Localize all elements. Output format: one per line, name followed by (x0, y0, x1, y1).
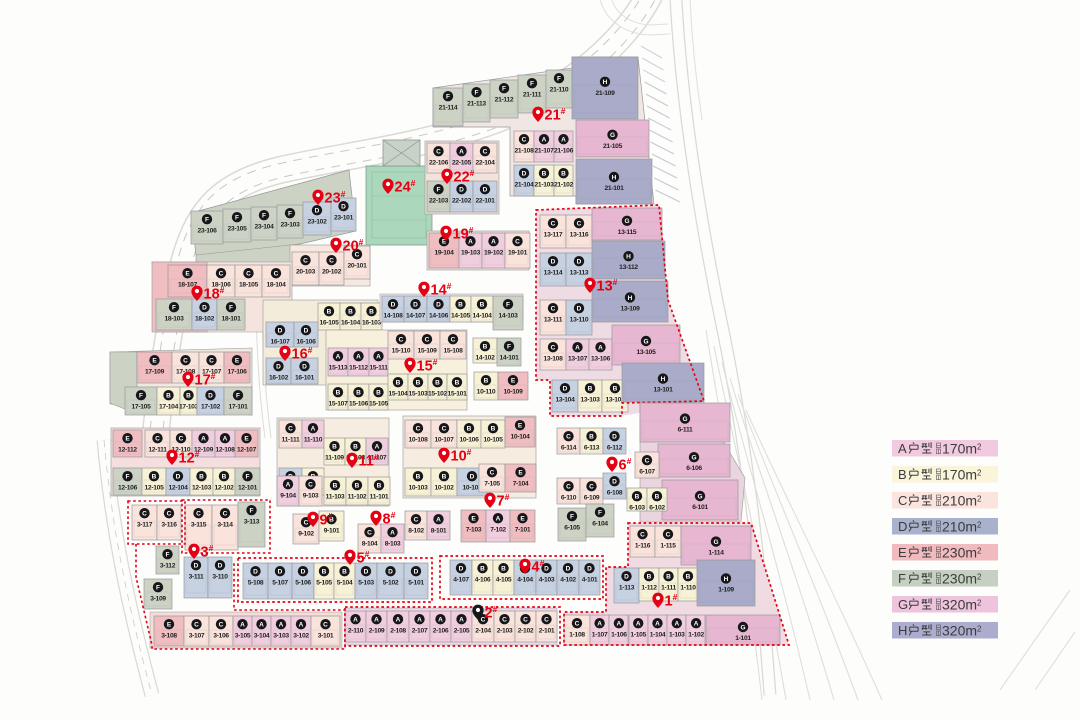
svg-text:23-104: 23-104 (254, 224, 274, 231)
svg-text:3-113: 3-113 (244, 519, 260, 526)
svg-text:D: D (459, 187, 464, 194)
svg-text:C: C (577, 221, 582, 228)
svg-text:B: B (655, 494, 660, 501)
svg-text:5-102: 5-102 (383, 580, 399, 587)
svg-text:6-110: 6-110 (561, 495, 577, 502)
svg-text:B: B (635, 494, 640, 501)
svg-text:B: B (542, 171, 547, 178)
svg-text:C: C (515, 239, 520, 246)
svg-text:B: B (322, 569, 327, 576)
svg-text:7-105: 7-105 (484, 481, 500, 488)
svg-text:C: C (442, 426, 447, 433)
svg-text:13-101: 13-101 (653, 387, 673, 394)
svg-text:E: E (152, 358, 157, 365)
svg-text:A: A (311, 426, 316, 433)
svg-text:C: C (490, 470, 495, 477)
svg-text:13-116: 13-116 (570, 232, 589, 239)
svg-text:C: C (551, 221, 556, 228)
svg-text:F: F (246, 474, 250, 481)
svg-text:21-104: 21-104 (514, 182, 534, 189)
svg-text:D: D (483, 187, 488, 194)
svg-text:12-103: 12-103 (192, 485, 212, 492)
svg-text:C: C (399, 337, 404, 344)
svg-text:A: A (561, 137, 566, 144)
svg-text:14-104: 14-104 (472, 313, 492, 320)
svg-text:5-106: 5-106 (295, 580, 311, 587)
svg-text:10-102: 10-102 (434, 485, 454, 492)
svg-text:12-111: 12-111 (148, 447, 167, 454)
svg-text:17-105: 17-105 (131, 404, 151, 411)
svg-text:3-108: 3-108 (161, 633, 177, 640)
svg-text:G: G (691, 455, 696, 462)
svg-text:18-105: 18-105 (239, 282, 259, 289)
svg-text:4-102: 4-102 (560, 577, 576, 584)
svg-text:D: D (176, 474, 181, 481)
svg-text:1-115: 1-115 (660, 543, 676, 550)
svg-text:B: B (376, 390, 381, 397)
svg-text:3-104: 3-104 (254, 633, 270, 640)
svg-text:C: C (246, 271, 251, 278)
svg-text:B: B (353, 444, 358, 451)
svg-text:21-101: 21-101 (604, 185, 624, 192)
svg-text:12-108: 12-108 (215, 447, 235, 454)
svg-text:G: G (713, 539, 718, 546)
svg-text:C: C (209, 358, 214, 365)
svg-text:A: A (286, 482, 291, 489)
svg-text:10-108: 10-108 (408, 437, 428, 444)
svg-text:C: C (566, 434, 571, 441)
svg-text:C: C (323, 622, 328, 629)
svg-text:C: C (483, 149, 488, 156)
svg-text:11-110: 11-110 (304, 437, 323, 444)
svg-text:C: C (666, 532, 671, 539)
svg-text:D: D (276, 364, 281, 371)
svg-text:C: C (219, 271, 224, 278)
svg-text:A: A (898, 441, 907, 456)
svg-text:14-102: 14-102 (475, 355, 495, 362)
svg-text:14-105: 14-105 (451, 313, 471, 320)
svg-text:F: F (570, 514, 574, 521)
svg-text:22-103: 22-103 (429, 198, 449, 205)
svg-text:C: C (575, 621, 580, 628)
svg-text:B: B (442, 474, 447, 481)
svg-text:A: A (436, 517, 441, 524)
svg-text:D: D (208, 393, 213, 400)
svg-text:C: C (142, 511, 147, 518)
svg-text:230m2: 230m2 (942, 545, 982, 561)
svg-text:D: D (551, 259, 556, 266)
svg-text:6-104: 6-104 (592, 521, 608, 528)
svg-text:G: G (610, 132, 615, 139)
svg-text:2-102: 2-102 (518, 628, 534, 635)
svg-text:1-112: 1-112 (641, 585, 657, 592)
svg-text:E: E (518, 423, 523, 430)
svg-text:A: A (636, 621, 641, 628)
svg-text:170m2: 170m2 (942, 467, 982, 483)
svg-text:8-103: 8-103 (385, 541, 401, 548)
svg-text:B: B (501, 566, 506, 573)
svg-text:17-104: 17-104 (159, 404, 179, 411)
svg-text:6-106: 6-106 (686, 465, 702, 472)
svg-text:D: D (522, 171, 527, 178)
svg-text:A: A (674, 621, 679, 628)
svg-text:11-103: 11-103 (326, 494, 345, 501)
svg-text:12-102: 12-102 (214, 485, 234, 492)
svg-text:D: D (218, 563, 223, 570)
svg-text:6-109: 6-109 (584, 495, 600, 502)
svg-text:15-101: 15-101 (447, 391, 467, 398)
svg-text:21-113: 21-113 (467, 101, 486, 108)
svg-text:3-110: 3-110 (212, 574, 228, 581)
svg-text:G: G (898, 597, 908, 612)
svg-text:F: F (507, 344, 511, 351)
svg-text:5-105: 5-105 (316, 580, 332, 587)
svg-text:3-107: 3-107 (189, 633, 205, 640)
svg-text:1-107: 1-107 (592, 632, 608, 639)
svg-text:B: B (484, 378, 489, 385)
svg-text:F: F (530, 81, 534, 88)
svg-text:15-102: 15-102 (428, 391, 448, 398)
svg-text:B: B (686, 574, 691, 581)
svg-text:13-104: 13-104 (555, 397, 575, 404)
svg-text:2-105: 2-105 (454, 628, 470, 635)
svg-text:10-105: 10-105 (483, 437, 503, 444)
svg-text:2-104: 2-104 (475, 628, 491, 635)
svg-text:B: B (613, 386, 618, 393)
svg-text:13-115: 13-115 (618, 229, 637, 236)
svg-text:A: A (390, 530, 395, 537)
svg-text:3-112: 3-112 (160, 563, 176, 570)
svg-text:B: B (480, 566, 485, 573)
svg-text:1-110: 1-110 (680, 585, 696, 592)
svg-text:B: B (369, 309, 374, 316)
svg-text:C: C (551, 306, 556, 313)
svg-text:6-102: 6-102 (649, 505, 665, 512)
svg-text:20-103: 20-103 (296, 269, 316, 276)
svg-text:3-116: 3-116 (161, 522, 177, 529)
svg-text:F: F (166, 552, 170, 559)
svg-text:16-105: 16-105 (319, 320, 339, 327)
svg-text:3-117: 3-117 (137, 522, 153, 529)
svg-text:6-107: 6-107 (639, 469, 655, 476)
svg-text:E: E (185, 271, 190, 278)
svg-text:10-106: 10-106 (459, 437, 479, 444)
svg-text:D: D (436, 302, 441, 309)
svg-text:D: D (612, 479, 617, 486)
svg-text:3-106: 3-106 (213, 633, 229, 640)
svg-text:A: A (617, 621, 622, 628)
svg-text:H: H (724, 576, 729, 583)
svg-text:H: H (603, 79, 608, 86)
svg-text:B: B (356, 390, 361, 397)
svg-text:1-109: 1-109 (718, 586, 734, 593)
svg-text:16-104: 16-104 (341, 320, 361, 327)
svg-text:4-103: 4-103 (539, 577, 555, 584)
svg-text:14-107: 14-107 (406, 313, 426, 320)
svg-text:D: D (577, 259, 582, 266)
svg-text:A: A (496, 516, 501, 523)
svg-text:9-104: 9-104 (280, 493, 296, 500)
svg-text:B: B (332, 444, 337, 451)
svg-text:D: D (459, 566, 464, 573)
svg-text:14-103: 14-103 (498, 313, 518, 320)
svg-text:10-104: 10-104 (510, 434, 530, 441)
svg-text:C: C (436, 149, 441, 156)
svg-text:4-104: 4-104 (517, 577, 533, 584)
svg-text:F: F (898, 571, 906, 586)
svg-text:B: B (491, 426, 496, 433)
svg-text:G: G (643, 338, 648, 345)
svg-text:A: A (375, 444, 380, 451)
svg-text:F: F (288, 211, 292, 218)
svg-text:2-107: 2-107 (412, 628, 428, 635)
svg-text:7-103: 7-103 (466, 527, 482, 534)
svg-text:23-106: 23-106 (197, 228, 217, 235)
svg-text:B: B (152, 474, 157, 481)
svg-text:1-106: 1-106 (611, 632, 627, 639)
svg-text:C: C (308, 482, 313, 489)
svg-text:B: B (647, 574, 652, 581)
svg-text:A: A (353, 617, 358, 624)
svg-text:23-103: 23-103 (280, 222, 300, 229)
svg-text:D: D (341, 204, 346, 211)
svg-text:3-103: 3-103 (273, 633, 289, 640)
svg-text:G: G (740, 624, 745, 631)
svg-text:13-114: 13-114 (544, 270, 563, 277)
svg-text:1-102: 1-102 (688, 632, 704, 639)
svg-text:F: F (437, 187, 441, 194)
svg-text:A: A (336, 354, 341, 361)
svg-text:F: F (126, 474, 130, 481)
svg-text:12-104: 12-104 (168, 485, 188, 492)
svg-text:A: A (279, 622, 284, 629)
svg-text:5-104: 5-104 (337, 580, 353, 587)
svg-text:D: D (563, 386, 568, 393)
svg-text:17-109: 17-109 (145, 369, 165, 376)
svg-text:F: F (262, 213, 266, 220)
svg-text:15-105: 15-105 (369, 401, 389, 408)
svg-text:G: G (624, 218, 629, 225)
svg-text:C: C (179, 436, 184, 443)
svg-text:A: A (655, 621, 660, 628)
svg-text:15-112: 15-112 (349, 365, 368, 372)
svg-text:6-101: 6-101 (692, 504, 708, 511)
svg-text:F: F (236, 393, 240, 400)
svg-text:D: D (302, 364, 307, 371)
svg-text:D: D (278, 328, 283, 335)
svg-text:A: A (240, 622, 245, 629)
svg-text:12-107: 12-107 (237, 447, 257, 454)
svg-text:B: B (377, 483, 382, 490)
svg-text:A: A (459, 149, 464, 156)
svg-text:9-103: 9-103 (303, 493, 319, 500)
svg-text:B: B (222, 474, 227, 481)
svg-text:13-111: 13-111 (544, 317, 563, 324)
svg-text:C: C (502, 617, 507, 624)
svg-text:17-106: 17-106 (227, 369, 247, 376)
svg-text:B: B (342, 569, 347, 576)
svg-text:A: A (223, 436, 228, 443)
svg-text:3-109: 3-109 (150, 596, 166, 603)
svg-text:2-109: 2-109 (369, 628, 385, 635)
svg-text:17-102: 17-102 (201, 404, 221, 411)
svg-text:E: E (511, 378, 516, 385)
svg-text:9-101: 9-101 (324, 528, 340, 535)
svg-text:C: C (196, 511, 201, 518)
svg-text:C: C (425, 337, 430, 344)
svg-text:3-102: 3-102 (293, 633, 309, 640)
svg-text:A: A (542, 137, 547, 144)
svg-text:4-106: 4-106 (475, 577, 491, 584)
svg-text:F: F (475, 90, 479, 97)
svg-text:F: F (156, 585, 160, 592)
svg-text:F: F (598, 510, 602, 517)
svg-text:1-116: 1-116 (635, 543, 651, 550)
svg-text:10-107: 10-107 (434, 437, 454, 444)
svg-text:13-117: 13-117 (544, 232, 563, 239)
svg-text:C: C (167, 511, 172, 518)
svg-text:21-114: 21-114 (439, 105, 458, 112)
svg-text:13-105: 13-105 (636, 349, 656, 356)
svg-text:210m2: 210m2 (942, 493, 982, 509)
svg-text:F: F (250, 508, 254, 515)
svg-text:B: B (480, 302, 485, 309)
svg-text:10-109: 10-109 (503, 389, 523, 396)
svg-text:F: F (229, 305, 233, 312)
svg-text:4-105: 4-105 (496, 577, 512, 584)
svg-text:10-110: 10-110 (477, 389, 496, 396)
svg-text:3-111: 3-111 (189, 574, 204, 581)
svg-text:D: D (624, 574, 629, 581)
svg-text:E: E (520, 516, 525, 523)
svg-text:320m2: 320m2 (942, 597, 982, 613)
svg-text:E: E (518, 470, 523, 477)
svg-text:F: F (506, 302, 510, 309)
svg-text:F: F (502, 86, 506, 93)
svg-text:2-108: 2-108 (390, 628, 406, 635)
svg-text:D: D (278, 569, 283, 576)
svg-text:C: C (522, 137, 527, 144)
svg-text:22-102: 22-102 (452, 198, 472, 205)
svg-text:A: A (694, 621, 699, 628)
svg-text:2-106: 2-106 (433, 628, 449, 635)
svg-text:D: D (470, 474, 475, 481)
svg-text:1-105: 1-105 (630, 632, 646, 639)
svg-text:D: D (315, 208, 320, 215)
svg-text:D: D (253, 569, 258, 576)
svg-text:D: D (301, 569, 306, 576)
svg-text:5-103: 5-103 (358, 580, 374, 587)
svg-text:8-102: 8-102 (408, 528, 424, 535)
svg-text:H: H (628, 295, 633, 302)
svg-text:4-101: 4-101 (582, 577, 598, 584)
svg-text:2-110: 2-110 (348, 628, 364, 635)
svg-text:B: B (336, 390, 341, 397)
svg-text:B: B (666, 574, 671, 581)
svg-text:3-114: 3-114 (217, 522, 233, 529)
svg-text:21-111: 21-111 (523, 92, 542, 99)
svg-text:C: C (194, 622, 199, 629)
svg-text:4-107: 4-107 (453, 577, 469, 584)
svg-text:D: D (194, 563, 199, 570)
svg-text:A: A (259, 622, 264, 629)
svg-text:F: F (139, 393, 143, 400)
svg-text:6-112: 6-112 (607, 445, 623, 452)
svg-text:A: A (396, 617, 401, 624)
svg-text:C: C (155, 436, 160, 443)
svg-text:210m2: 210m2 (942, 519, 982, 535)
svg-text:F: F (205, 217, 209, 224)
svg-text:1-108: 1-108 (569, 632, 585, 639)
svg-text:G: G (682, 416, 687, 423)
svg-text:B: B (355, 483, 360, 490)
svg-text:1-101: 1-101 (735, 635, 751, 642)
svg-text:H: H (661, 376, 666, 383)
svg-text:15-111: 15-111 (369, 365, 388, 372)
svg-text:170m2: 170m2 (942, 441, 982, 457)
svg-text:B: B (348, 309, 353, 316)
svg-text:D: D (898, 519, 907, 534)
svg-text:20-102: 20-102 (322, 269, 342, 276)
svg-text:A: A (438, 617, 443, 624)
svg-text:6-103: 6-103 (629, 505, 645, 512)
svg-text:B: B (166, 393, 171, 400)
svg-text:18-102: 18-102 (195, 316, 215, 323)
svg-text:A: A (376, 354, 381, 361)
svg-text:B: B (467, 426, 472, 433)
svg-text:15-113: 15-113 (329, 365, 348, 372)
svg-text:C: C (223, 511, 228, 518)
svg-text:13-106: 13-106 (591, 356, 611, 363)
svg-text:C: C (640, 532, 645, 539)
svg-text:3-115: 3-115 (191, 522, 207, 529)
svg-text:6-108: 6-108 (607, 490, 623, 497)
svg-text:1-103: 1-103 (669, 632, 685, 639)
svg-text:C: C (304, 520, 309, 527)
svg-text:D: D (388, 569, 393, 576)
svg-text:A: A (491, 239, 496, 246)
svg-text:21-103: 21-103 (534, 182, 554, 189)
svg-text:21-106: 21-106 (554, 148, 574, 155)
svg-text:A: A (597, 621, 602, 628)
svg-text:19-104: 19-104 (434, 250, 454, 257)
svg-text:B: B (589, 434, 594, 441)
svg-text:C: C (589, 484, 594, 491)
svg-text:A: A (459, 617, 464, 624)
svg-text:C: C (274, 271, 279, 278)
svg-text:C: C (566, 484, 571, 491)
svg-text:D: D (612, 434, 617, 441)
svg-text:B: B (396, 380, 401, 387)
svg-text:C: C (329, 258, 334, 265)
svg-text:C: C (414, 517, 419, 524)
svg-text:H: H (626, 254, 631, 261)
svg-text:D: D (544, 566, 549, 573)
svg-text:18-104: 18-104 (266, 282, 286, 289)
svg-text:22-101: 22-101 (475, 198, 495, 205)
svg-text:C: C (544, 617, 549, 624)
svg-text:B: B (199, 474, 204, 481)
svg-text:12-112: 12-112 (118, 447, 137, 454)
svg-text:13-107: 13-107 (568, 356, 588, 363)
svg-text:D: D (577, 306, 582, 313)
svg-text:B: B (327, 309, 332, 316)
svg-text:E: E (167, 622, 172, 629)
svg-text:21-105: 21-105 (603, 143, 623, 150)
svg-text:13-103: 13-103 (580, 397, 600, 404)
svg-text:F: F (446, 94, 450, 101)
svg-text:14-108: 14-108 (383, 313, 403, 320)
